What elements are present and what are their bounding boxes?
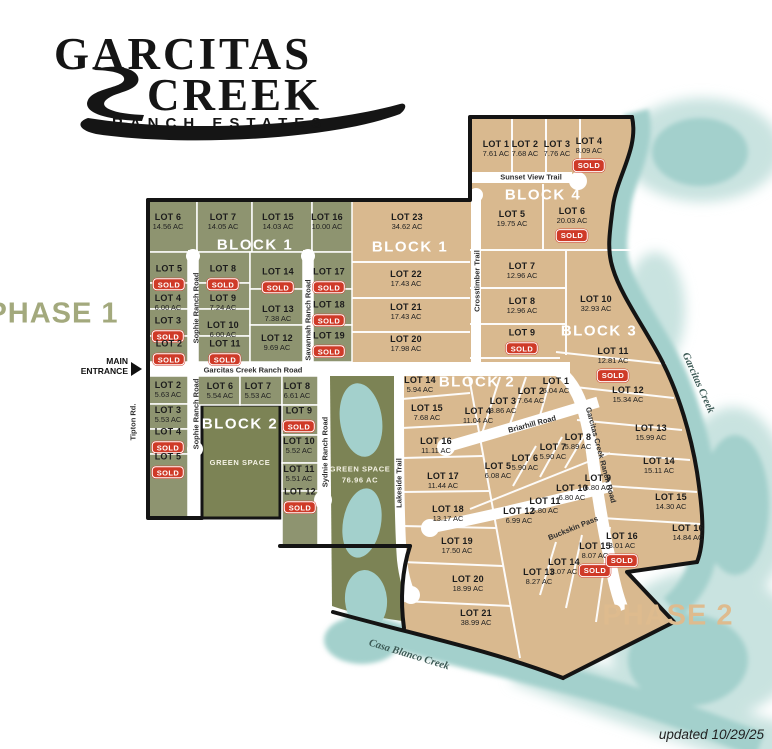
lot-label: LOT 5SOLD [153, 264, 185, 291]
lot-name: LOT 12 [284, 487, 316, 497]
sold-badge: SOLD [207, 278, 239, 291]
lot-label: LOT 5SOLD [152, 452, 184, 479]
lot-acreage: 9.69 AC [261, 344, 293, 352]
lot-label: LOT 1112.81 ACSOLD [597, 347, 629, 383]
lot-acreage: 5.90 AC [512, 464, 539, 472]
lot-label: LOT 1315.99 AC [635, 424, 667, 442]
block-label: BLOCK 2 [439, 374, 515, 391]
green-space-name: GREEN SPACE [210, 458, 271, 469]
lot-label: LOT 17SOLD [313, 267, 345, 294]
lot-acreage: 8.07 AC [548, 568, 580, 576]
lot-acreage: 6.99 AC [503, 517, 535, 525]
lot-acreage: 15.11 AC [643, 467, 675, 475]
lot-label: LOT 2SOLD [153, 339, 185, 366]
lot-name: LOT 4 [152, 427, 184, 437]
lot-label: LOT 620.03 ACSOLD [556, 207, 588, 243]
lot-acreage: 38.99 AC [460, 619, 492, 627]
lot-label: LOT 148.07 AC [548, 558, 580, 576]
sold-badge: SOLD [506, 342, 538, 355]
lot-label: LOT 37.76 AC [544, 140, 571, 158]
lot-label: LOT 1032.93 AC [580, 295, 612, 313]
lot-acreage: 18.99 AC [452, 585, 484, 593]
lot-label: LOT 97.24 AC [210, 294, 237, 312]
plat-map: GARCITAS CREEK RANCH ESTATES PHASE 1 PHA… [0, 0, 772, 749]
lot-acreage: 14.03 AC [262, 223, 294, 231]
road-label: Savannah Ranch Road [304, 279, 313, 360]
lot-label: LOT 35.53 AC [155, 406, 182, 424]
lot-label: LOT 115.51 AC [283, 465, 314, 483]
lot-label: LOT 19SOLD [313, 331, 345, 358]
lot-label: LOT 1611.11 AC [420, 437, 452, 455]
lot-acreage: 5.51 AC [283, 475, 314, 483]
lot-acreage: 7.68 AC [512, 150, 539, 158]
lot-acreage: 14.05 AC [208, 223, 239, 231]
lot-acreage: 8.27 AC [523, 578, 555, 586]
lot-name: LOT 11 [209, 339, 241, 349]
lot-label: LOT 9SOLD [283, 406, 315, 433]
lot-acreage: 17.98 AC [390, 345, 422, 353]
lot-label: LOT 519.75 AC [497, 210, 528, 228]
lot-label: LOT 25.63 AC [155, 381, 182, 399]
lot-label: LOT 2117.43 AC [390, 303, 422, 321]
lot-acreage: 17.43 AC [390, 280, 422, 288]
lot-acreage: 5.89 AC [565, 443, 592, 451]
lot-label: LOT 105.52 AC [283, 437, 315, 455]
lot-name: LOT 8 [207, 264, 239, 274]
lot-label: LOT 1514.03 AC [262, 213, 294, 231]
lot-label: LOT 18SOLD [313, 300, 345, 327]
sold-badge: SOLD [209, 353, 241, 366]
road-label: Buckskin Pass [547, 514, 599, 542]
lot-label: LOT 106.00 AC [207, 321, 239, 339]
lot-label: LOT 56.08 AC [485, 462, 512, 480]
road-label: Sydnie Ranch Road [321, 417, 330, 487]
lot-label: LOT 27.68 AC [512, 140, 539, 158]
green-space-label: GREEN SPACE76.96 AC [330, 465, 391, 486]
lot-name: LOT 3 [152, 316, 184, 326]
lot-label: LOT 11SOLD [209, 339, 241, 366]
lot-acreage: 5.53 AC [155, 416, 182, 424]
block-label: BLOCK 1 [372, 239, 448, 256]
creek-label: Garcitas Creek [680, 351, 717, 415]
lot-label: LOT 2217.43 AC [390, 270, 422, 288]
lot-label: LOT 106.80 AC [556, 484, 588, 502]
lot-label: LOT 1415.11 AC [643, 457, 675, 475]
lot-label: LOT 14SOLD [262, 267, 294, 294]
lot-label: LOT 2018.99 AC [452, 575, 484, 593]
lot-label: LOT 137.38 AC [262, 305, 294, 323]
lot-label: LOT 46.00 AC [155, 294, 182, 312]
lot-label: LOT 714.05 AC [208, 213, 239, 231]
lot-label: LOT 65.54 AC [207, 382, 234, 400]
lot-label: LOT 1917.50 AC [441, 537, 473, 555]
lot-label: LOT 157.68 AC [411, 404, 443, 422]
block-label: BLOCK 2 [202, 416, 278, 433]
lot-acreage: 7.38 AC [262, 315, 294, 323]
lot-label: LOT 129.69 AC [261, 334, 293, 352]
lot-name: LOT 9 [506, 328, 538, 338]
lot-label: LOT 2138.99 AC [460, 609, 492, 627]
lot-label: LOT 17.61 AC [483, 140, 510, 158]
lot-acreage: 32.93 AC [580, 305, 612, 313]
road-label: Lakeside Trail [395, 458, 404, 508]
lot-acreage: 13.17 AC [432, 515, 464, 523]
lot-label: LOT 9SOLD [506, 328, 538, 355]
sold-badge: SOLD [313, 314, 345, 327]
lot-label: LOT 126.99 AC [503, 507, 535, 525]
lot-acreage: 6.80 AC [556, 494, 588, 502]
lot-acreage: 8.09 AC [573, 147, 605, 155]
sold-badge: SOLD [313, 281, 345, 294]
lot-label: LOT 1711.44 AC [427, 472, 459, 490]
lot-label: LOT 1614.84 AC [672, 524, 704, 542]
lot-label: LOT 48.09 ACSOLD [573, 137, 605, 173]
lot-label: LOT 86.61 AC [284, 382, 311, 400]
lot-name: LOT 19 [313, 331, 345, 341]
lot-acreage: 7.68 AC [411, 414, 443, 422]
lot-acreage: 20.03 AC [556, 217, 588, 225]
lot-label: LOT 75.53 AC [245, 382, 272, 400]
lot-acreage: 5.52 AC [283, 447, 315, 455]
lot-acreage: 7.61 AC [483, 150, 510, 158]
lot-acreage: 14.84 AC [672, 534, 704, 542]
lot-label: LOT 8SOLD [207, 264, 239, 291]
lot-acreage: 8.01 AC [606, 542, 638, 550]
lot-acreage: 19.75 AC [497, 220, 528, 228]
lot-label: LOT 2334.62 AC [391, 213, 423, 231]
green-space-acreage: 76.96 AC [330, 475, 391, 486]
lot-label: LOT 2017.98 AC [390, 335, 422, 353]
lot-name: LOT 17 [313, 267, 345, 277]
road-label: Sunset View Trail [500, 173, 562, 182]
road-label: Sophie Ranch Road [192, 379, 201, 450]
lot-acreage: 6.61 AC [284, 392, 311, 400]
lot-acreage: 5.63 AC [155, 391, 182, 399]
sold-badge: SOLD [152, 466, 184, 479]
block-label: BLOCK 3 [561, 323, 637, 340]
lot-acreage: 12.96 AC [507, 307, 538, 315]
lot-label: LOT 85.89 AC [565, 433, 592, 451]
green-space-name: GREEN SPACE [330, 465, 391, 476]
lot-label: LOT 38.86 AC [490, 397, 517, 415]
sold-badge: SOLD [153, 278, 185, 291]
road-label: Garcitas Creek Ranch Road [204, 366, 303, 375]
lot-acreage: 12.96 AC [507, 272, 538, 280]
lot-acreage: 5.94 AC [404, 386, 436, 394]
lot-acreage: 8.86 AC [490, 407, 517, 415]
lot-label: LOT 614.56 AC [153, 213, 184, 231]
lot-label: LOT 145.94 AC [404, 376, 436, 394]
lot-label: LOT 27.64 AC [518, 387, 545, 405]
lot-label: LOT 1514.30 AC [655, 493, 687, 511]
lot-acreage: 7.76 AC [544, 150, 571, 158]
lot-name: LOT 14 [262, 267, 294, 277]
lot-acreage: 14.56 AC [153, 223, 184, 231]
lot-label: LOT 65.90 AC [512, 454, 539, 472]
lot-label: LOT 12SOLD [284, 487, 316, 514]
lot-acreage: 17.43 AC [390, 313, 422, 321]
block-label: BLOCK 4 [505, 187, 581, 204]
lot-name: LOT 5 [152, 452, 184, 462]
lot-label: LOT 75.90 AC [540, 443, 567, 461]
lot-acreage: 5.53 AC [245, 392, 272, 400]
sold-badge: SOLD [283, 420, 315, 433]
lot-label: LOT 812.96 AC [507, 297, 538, 315]
sold-badge: SOLD [606, 554, 638, 567]
lot-name: LOT 5 [153, 264, 185, 274]
lot-acreage: 6.04 AC [543, 387, 570, 395]
creek-label: Casa Blanco Creek [368, 638, 451, 673]
road-label: Crosstimber Trail [473, 250, 482, 312]
lot-acreage: 17.50 AC [441, 547, 473, 555]
lot-label: LOT 1215.34 AC [612, 386, 644, 404]
sold-badge: SOLD [556, 229, 588, 242]
sold-badge: SOLD [597, 369, 629, 382]
road-label: Sophie Ranch Road [192, 273, 201, 344]
lot-acreage: 11.44 AC [427, 482, 459, 490]
lot-name: LOT 9 [283, 406, 315, 416]
road-label: Tipton Rd. [129, 404, 138, 441]
lot-acreage: 12.81 AC [597, 357, 629, 365]
sold-badge: SOLD [313, 345, 345, 358]
labels-layer: LOT 614.56 ACLOT 714.05 ACLOT 1514.03 AC… [0, 0, 772, 749]
lot-label: LOT 168.01 ACSOLD [606, 532, 638, 568]
green-space-label: GREEN SPACE [210, 458, 271, 469]
lot-acreage: 7.24 AC [210, 304, 237, 312]
lot-label: LOT 1813.17 AC [432, 505, 464, 523]
lot-name: LOT 18 [313, 300, 345, 310]
lot-label: LOT 1610.00 AC [311, 213, 343, 231]
lot-acreage: 10.00 AC [311, 223, 343, 231]
sold-badge: SOLD [262, 281, 294, 294]
sold-badge: SOLD [153, 353, 185, 366]
lot-label: LOT 411.04 AC [463, 407, 493, 425]
lot-acreage: 6.08 AC [485, 472, 512, 480]
lot-acreage: 15.99 AC [635, 434, 667, 442]
lot-acreage: 7.64 AC [518, 397, 545, 405]
lot-acreage: 6.00 AC [155, 304, 182, 312]
lot-acreage: 5.90 AC [540, 453, 567, 461]
lot-acreage: 34.62 AC [391, 223, 423, 231]
lot-acreage: 11.11 AC [420, 447, 452, 455]
lot-acreage: 5.54 AC [207, 392, 234, 400]
block-label: BLOCK 1 [217, 237, 293, 254]
sold-badge: SOLD [573, 159, 605, 172]
lot-acreage: 15.34 AC [612, 396, 644, 404]
road-label: Briarhill Road [507, 413, 557, 434]
lot-acreage: 11.04 AC [463, 417, 493, 425]
lot-acreage: 14.30 AC [655, 503, 687, 511]
lot-label: LOT 712.96 AC [507, 262, 538, 280]
lot-label: LOT 16.04 AC [543, 377, 570, 395]
sold-badge: SOLD [284, 501, 316, 514]
lot-name: LOT 2 [153, 339, 185, 349]
